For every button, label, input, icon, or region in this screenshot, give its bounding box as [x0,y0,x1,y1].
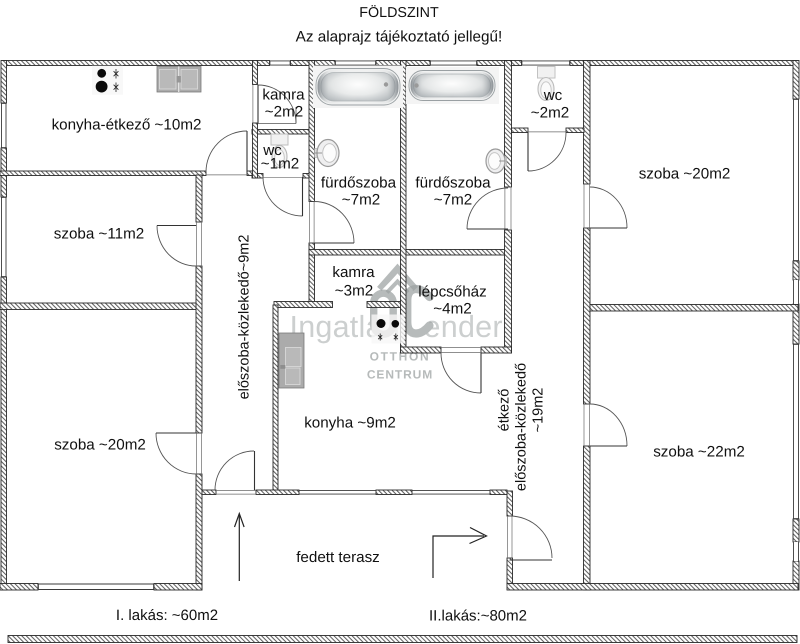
svg-text:wc: wc [543,87,563,104]
svg-text:kamra: kamra [262,87,305,104]
svg-text:szoba ~20m2: szoba ~20m2 [54,436,146,453]
svg-text:konyha-étkező ~10m2: konyha-étkező ~10m2 [52,116,202,133]
svg-text:szoba ~20m2: szoba ~20m2 [639,165,731,182]
svg-text:étkező: étkező [497,389,513,432]
svg-text:CENTRUM: CENTRUM [367,368,433,382]
svg-text:előszoba-közlekedő~9m2: előszoba-közlekedő~9m2 [237,235,253,400]
svg-text:Az alaprajz tájékoztató jelleg: Az alaprajz tájékoztató jellegű! [296,29,503,46]
svg-text:~19m2: ~19m2 [531,388,547,433]
svg-text:~2m2: ~2m2 [265,103,303,120]
svg-text:~2m2: ~2m2 [531,104,569,121]
svg-text:~1m2: ~1m2 [261,156,299,173]
svg-text:FÖLDSZINT: FÖLDSZINT [359,5,439,21]
svg-text:szoba ~11m2: szoba ~11m2 [54,226,144,243]
svg-text:kamra: kamra [332,264,375,281]
svg-text:~3m2: ~3m2 [335,282,373,299]
svg-text:előszoba-közlekedő: előszoba-közlekedő [514,363,530,491]
svg-text:fürdőszoba: fürdőszoba [321,175,397,192]
svg-text:konyha ~9m2: konyha ~9m2 [304,414,396,431]
svg-text:I. lakás: ~60m2: I. lakás: ~60m2 [116,607,218,624]
svg-text:fürdőszoba: fürdőszoba [415,175,491,192]
svg-text:lépcsőház: lépcsőház [418,283,486,300]
svg-text:~4m2: ~4m2 [433,300,471,317]
svg-text:~7m2: ~7m2 [342,192,380,209]
svg-text:II.lakás:~80m2: II.lakás:~80m2 [429,608,527,625]
svg-text:fedett terasz: fedett terasz [296,549,380,566]
svg-text:~7m2: ~7m2 [434,192,472,209]
svg-text:szoba ~22m2: szoba ~22m2 [653,443,745,460]
